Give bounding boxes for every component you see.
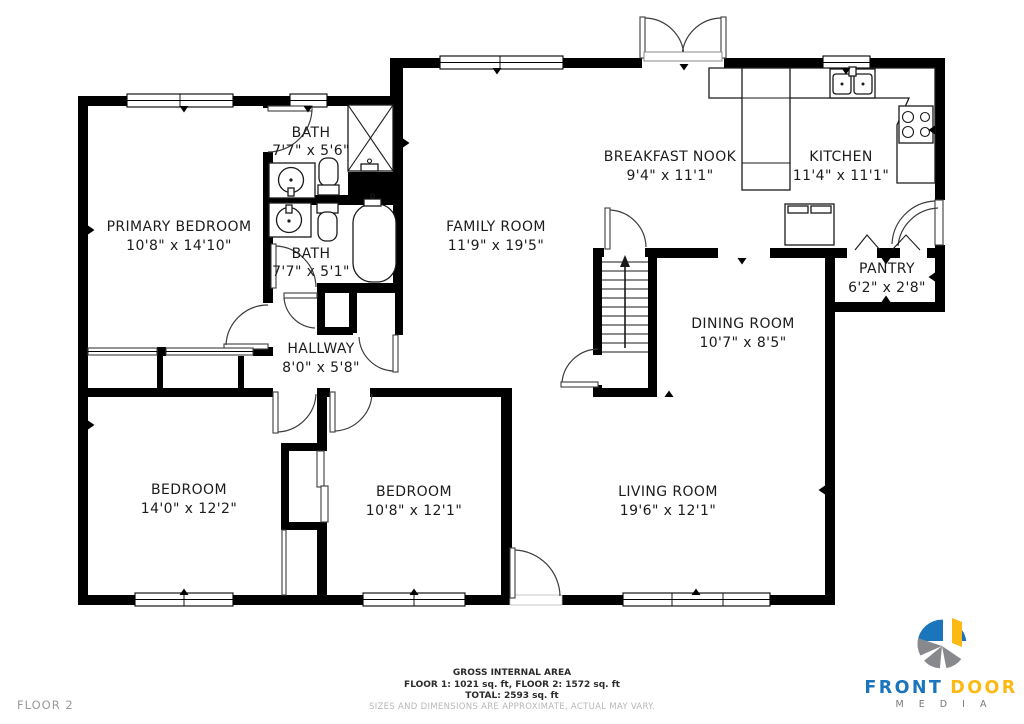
room-dims-primary-bedroom: 10'8" x 14'10" [126,238,232,254]
door-stairs-top [605,208,646,249]
shower [348,105,393,171]
room-label-bath-lower: BATH [292,246,331,262]
kitchen-sink [830,67,875,98]
staircase [602,255,648,352]
room-dims-bedroom-left: 14'0" x 12'2" [141,501,237,517]
room-label-pantry: PANTRY [859,261,915,277]
room-label-kitchen: KITCHEN [809,149,872,165]
footer-area-line1: FLOOR 1: 1021 sq. ft, FLOOR 2: 1572 sq. … [404,680,621,690]
window [823,56,870,69]
door-hall-closet-left [284,293,317,328]
room-dims-family-room: 11'9" x 19'5" [448,238,544,254]
window [290,94,327,107]
logo-brand-text: FRONTDOOR [864,678,1017,698]
room-labels-layer: PRIMARY BEDROOM 10'8" x 14'10" BATH 7'7"… [107,125,926,519]
room-label-hallway: HALLWAY [287,341,354,357]
footer: GROSS INTERNAL AREA FLOOR 1: 1021 sq. ft… [369,668,655,712]
floor-plan-canvas: PRIMARY BEDROOM 10'8" x 14'10" BATH 7'7"… [0,0,1024,724]
room-dims-bath-upper: 7'7" x 5'6" [272,143,350,159]
room-dims-bath-lower: 7'7" x 5'1" [272,264,350,280]
room-label-bedroom-middle: BEDROOM [376,484,452,500]
room-dims-living-room: 19'6" x 12'1" [620,503,716,519]
front-door-media-logo: FRONTDOOR M E D I A [864,618,1017,710]
room-dims-pantry: 6'2" x 2'8" [848,280,926,296]
footer-area-title: GROSS INTERNAL AREA [453,668,571,678]
logo-media-text: M E D I A [896,699,993,710]
double-door-exterior [640,17,726,61]
room-label-primary-bedroom: PRIMARY BEDROOM [107,219,252,235]
refrigerator [785,204,834,245]
sliding-doors-primary-closet [88,348,253,355]
room-dims-breakfast-nook: 9'4" x 11'1" [626,168,713,184]
window [440,56,563,69]
door-front-entry [510,548,562,605]
bathtub [353,194,396,282]
door-primary-bedroom [224,305,268,349]
toilet-upper [318,158,339,195]
door-hall-closet-right [359,335,398,372]
sink-vanity-upper [269,163,315,198]
footer-disclaimer: SIZES AND DIMENSIONS ARE APPROXIMATE, AC… [369,702,655,712]
floor-label: FLOOR 2 [17,698,74,712]
room-dims-hallway: 8'0" x 5'8" [282,360,360,376]
walls-layer [78,58,945,605]
room-label-family-room: FAMILY ROOM [446,219,546,235]
room-dims-dining-room: 10'7" x 8'5" [699,335,786,351]
room-dims-bedroom-middle: 10'8" x 12'1" [366,503,462,519]
room-label-bedroom-left: BEDROOM [151,482,227,498]
logo-mark-icon [917,618,966,668]
toilet-lower [317,203,338,241]
door-bedroom-middle [330,392,372,432]
room-label-breakfast-nook: BREAKFAST NOOK [604,149,737,165]
room-label-bath-upper: BATH [292,125,331,141]
room-label-living-room: LIVING ROOM [618,484,718,500]
room-label-dining-room: DINING ROOM [691,316,795,332]
footer-area-line2: TOTAL: 2593 sq. ft [465,691,559,701]
bifold-doors-pantry [855,235,920,250]
door-side-entry [892,200,943,246]
room-dims-kitchen: 11'4" x 11'1" [793,168,889,184]
window [127,94,233,107]
sink-vanity-lower [269,203,311,237]
door-bedroom-left [273,392,316,433]
stove [899,106,933,143]
door-stairs-closet [561,349,598,387]
